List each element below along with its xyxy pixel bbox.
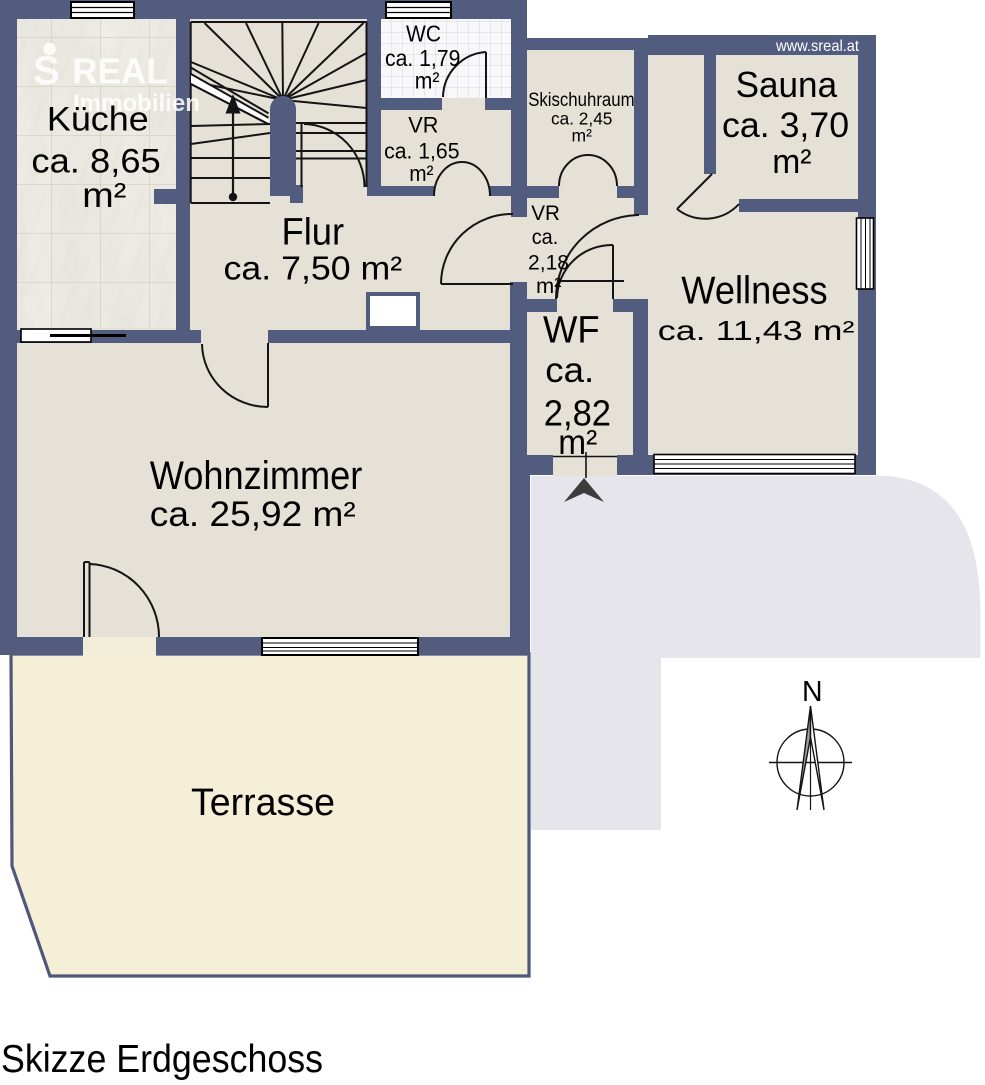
svg-text:m²: m² [82,176,126,215]
svg-text:VR: VR [408,113,438,138]
svg-text:ca.: ca. [545,351,594,390]
svg-text:m²: m² [415,68,440,94]
svg-text:ca. 3,70: ca. 3,70 [722,106,849,145]
svg-text:Flur: Flur [282,212,345,254]
svg-text:WC: WC [406,21,441,47]
svg-text:Sauna: Sauna [736,64,838,105]
svg-text:Wellness: Wellness [681,270,827,313]
svg-text:ca. 7,50 m²: ca. 7,50 m² [224,249,403,286]
svg-text:N: N [802,676,823,708]
svg-text:VR: VR [531,201,560,225]
svg-text:m²: m² [536,274,562,298]
svg-text:m²: m² [558,423,597,462]
svg-text:REAL: REAL [72,51,167,92]
svg-text:WF: WF [543,310,600,352]
svg-text:ca. 1,65: ca. 1,65 [384,139,459,164]
svg-text:m²: m² [409,161,434,186]
svg-text:ca. 8,65: ca. 8,65 [31,142,160,180]
svg-text:m²: m² [772,143,811,181]
svg-text:S: S [33,49,60,93]
svg-text:www.sreal.at: www.sreal.at [775,38,859,55]
svg-text:ca. 11,43 m²: ca. 11,43 m² [658,315,855,346]
svg-text:2,18: 2,18 [528,251,569,275]
svg-text:Terrasse: Terrasse [191,782,335,824]
svg-text:Skizze Erdgeschoss: Skizze Erdgeschoss [1,1038,323,1080]
svg-text:m²: m² [572,126,593,146]
svg-text:Wohnzimmer: Wohnzimmer [150,454,362,498]
svg-text:ca.: ca. [532,225,559,249]
svg-text:Küche: Küche [47,101,149,139]
svg-text:ca. 25,92 m²: ca. 25,92 m² [150,495,356,534]
